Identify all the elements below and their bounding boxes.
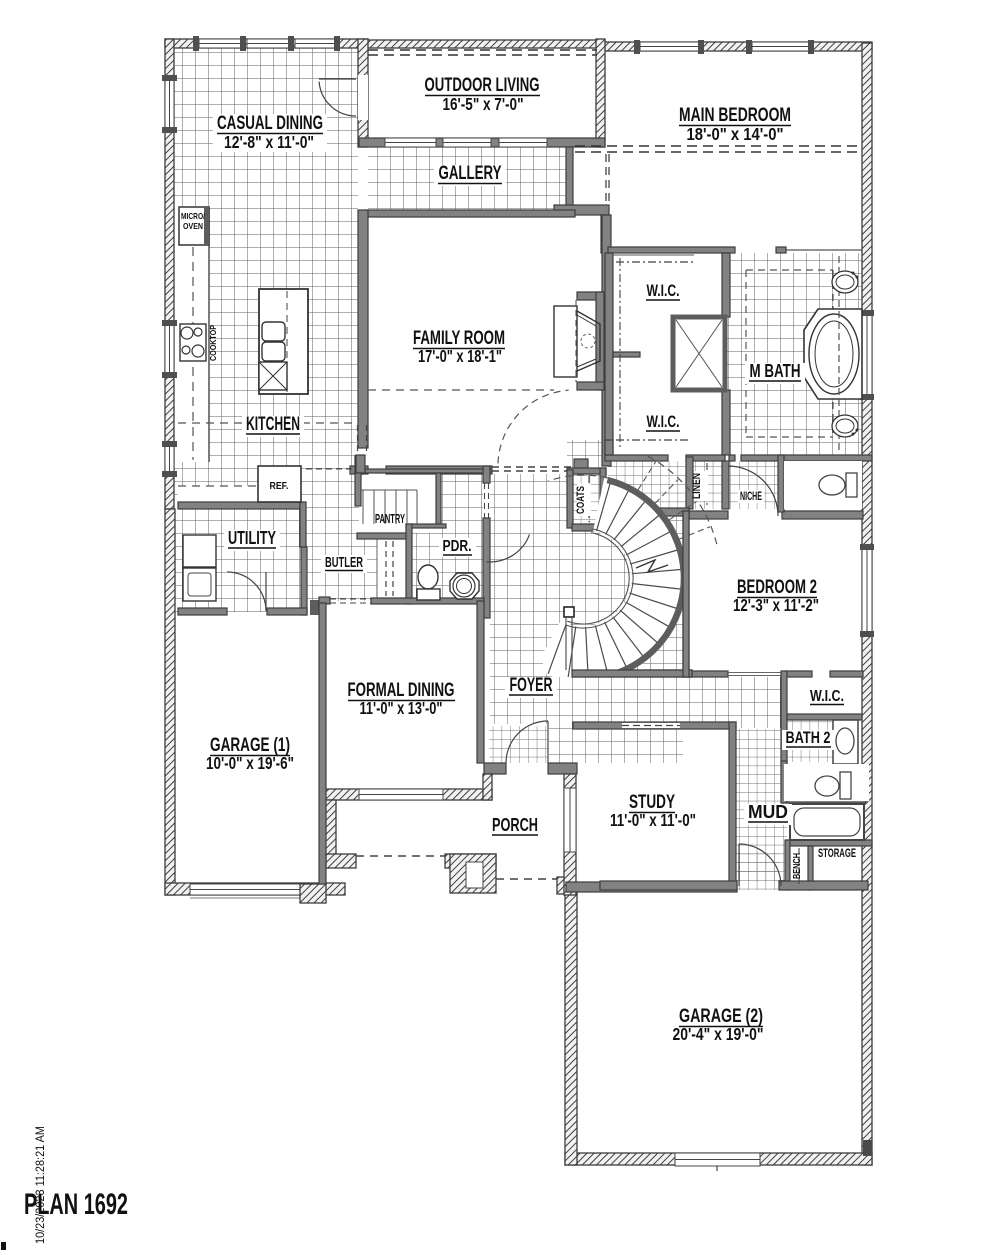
svg-text:17'-0" x 18'-1": 17'-0" x 18'-1" <box>418 346 502 366</box>
svg-text:OUTDOOR LIVING: OUTDOOR LIVING <box>425 75 540 96</box>
svg-text:BATH 2: BATH 2 <box>786 728 831 747</box>
svg-text:UTILITY: UTILITY <box>228 528 276 548</box>
svg-text:PORCH: PORCH <box>492 815 538 835</box>
svg-text:PANTRY: PANTRY <box>375 512 405 526</box>
svg-text:11'-0" x 11'-0": 11'-0" x 11'-0" <box>610 810 696 830</box>
svg-text:12'-8" x 11'-0": 12'-8" x 11'-0" <box>224 132 314 152</box>
svg-text:STORAGE: STORAGE <box>818 848 856 860</box>
svg-text:REF.: REF. <box>270 480 289 492</box>
svg-text:PDR.: PDR. <box>443 538 472 555</box>
svg-text:LINEN: LINEN <box>691 473 703 499</box>
svg-text:11'-0" x 13'-0": 11'-0" x 13'-0" <box>360 698 443 718</box>
svg-text:16'-5" x 7'-0": 16'-5" x 7'-0" <box>443 94 524 114</box>
svg-text:18'-0" x 14'-0": 18'-0" x 14'-0" <box>687 124 784 144</box>
svg-text:10'-0" x 19'-6": 10'-0" x 19'-6" <box>206 753 294 773</box>
svg-text:COATS: COATS <box>575 486 587 514</box>
svg-text:W.I.C.: W.I.C. <box>647 412 680 431</box>
svg-text:FOYER: FOYER <box>510 675 553 696</box>
svg-text:MUD: MUD <box>748 802 788 822</box>
svg-text:MICRO/: MICRO/ <box>181 211 205 221</box>
svg-text:W.I.C.: W.I.C. <box>647 281 680 300</box>
svg-text:M BATH: M BATH <box>750 361 801 381</box>
svg-text:CASUAL DINING: CASUAL DINING <box>217 113 323 134</box>
svg-text:MAIN BEDROOM: MAIN BEDROOM <box>679 105 791 126</box>
svg-text:BUTLER: BUTLER <box>325 554 363 571</box>
svg-text:NICHE: NICHE <box>740 491 762 503</box>
svg-text:10/23/2023 11:28:21 AM: 10/23/2023 11:28:21 AM <box>35 1126 47 1244</box>
svg-text:GALLERY: GALLERY <box>439 163 502 184</box>
svg-text:W.I.C.: W.I.C. <box>810 688 844 705</box>
svg-text:COOKTOP: COOKTOP <box>208 325 218 361</box>
svg-text:20'-4" x 19'-0": 20'-4" x 19'-0" <box>673 1024 764 1044</box>
svg-text:KITCHEN: KITCHEN <box>246 414 300 435</box>
svg-text:BENCH: BENCH <box>791 853 803 879</box>
svg-text:12'-3" x 11'-2": 12'-3" x 11'-2" <box>733 595 819 615</box>
svg-text:OVEN: OVEN <box>183 221 203 231</box>
